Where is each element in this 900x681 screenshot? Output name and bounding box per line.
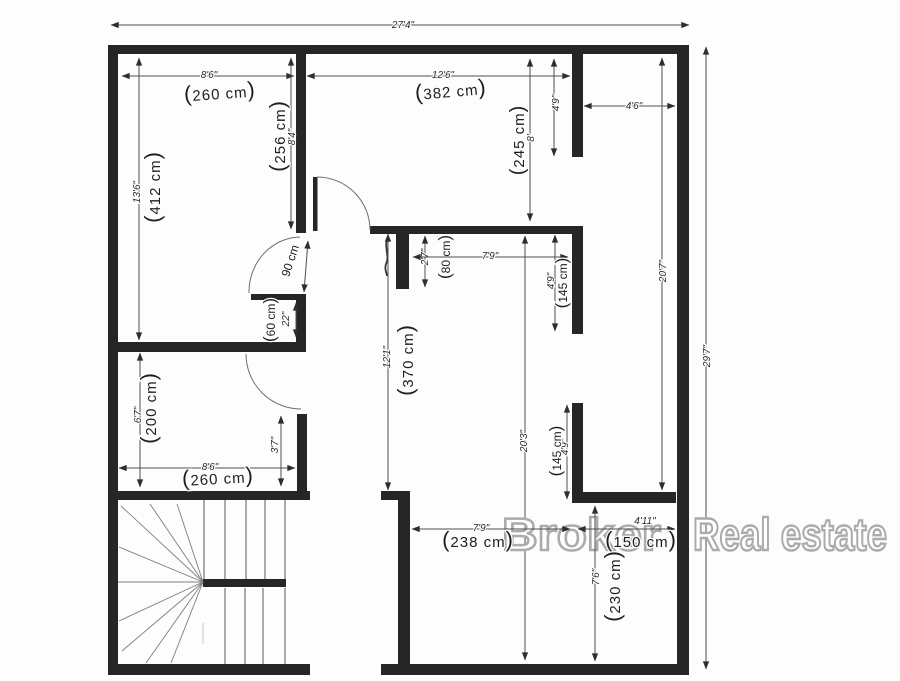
svg-text:8'4": 8'4" <box>287 128 298 145</box>
svg-text:20'7": 20'7" <box>658 259 669 283</box>
svg-text:3'7": 3'7" <box>270 436 281 453</box>
svg-text:4'6": 4'6" <box>626 101 643 112</box>
svg-text:22": 22" <box>281 311 292 327</box>
svg-text:20'3": 20'3" <box>519 429 530 453</box>
svg-text:13'6": 13'6" <box>132 180 143 203</box>
svg-text:12'1": 12'1" <box>382 345 393 368</box>
svg-text:7'6": 7'6" <box>591 568 602 585</box>
svg-text:4'11": 4'11" <box>634 516 656 527</box>
svg-text:4'9": 4'9" <box>551 94 562 111</box>
svg-text:27'4": 27'4" <box>391 20 415 31</box>
svg-text:7'9": 7'9" <box>473 523 490 534</box>
svg-text:8'6": 8'6" <box>201 70 218 81</box>
svg-text:12'6": 12'6" <box>432 70 455 81</box>
svg-text:29'7": 29'7" <box>702 344 713 368</box>
svg-text:7'9": 7'9" <box>482 251 499 262</box>
svg-text:Real estate: Real estate <box>693 509 887 560</box>
svg-text:8': 8' <box>526 133 537 142</box>
